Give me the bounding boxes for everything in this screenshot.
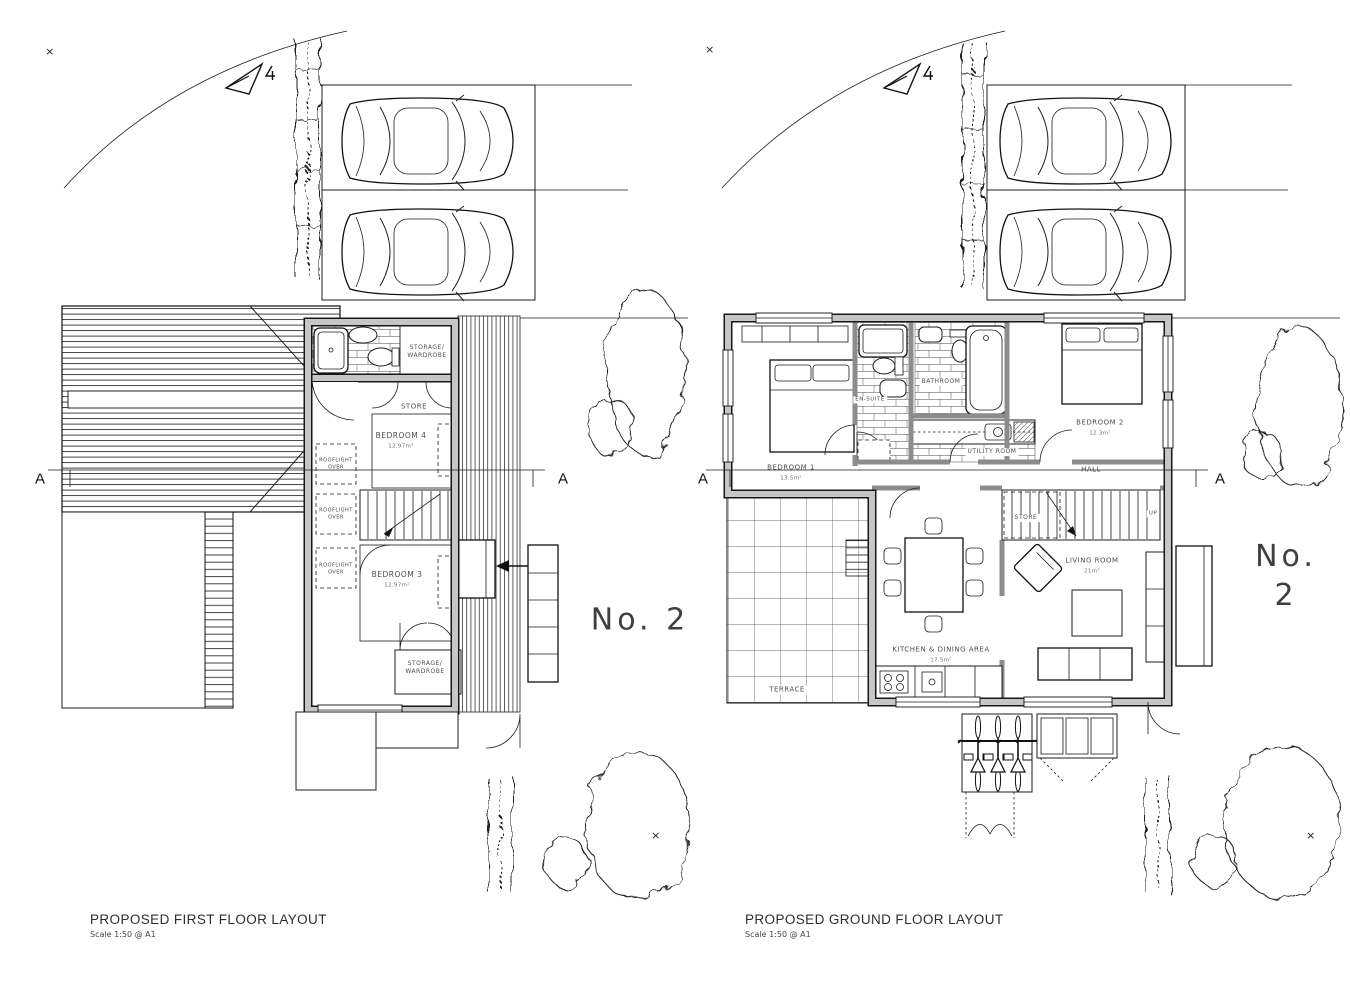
room-label-store: STORE (1013, 514, 1040, 522)
room-label-hall: HALL (1081, 465, 1101, 474)
room-label-storage-wardrobe-bottom: STORAGE/ WARDROBE (405, 660, 444, 676)
survey-mark: × (651, 829, 661, 843)
room-label-terrace: TERRACE (767, 685, 807, 694)
room-label-bedroom3: BEDROOM 3 (372, 570, 423, 580)
room-area-bedroom4: 12.97m² (388, 443, 413, 450)
drawing-scale-note: Scale 1:50 @ A1 (745, 930, 811, 939)
room-area-bedroom1: 13.5m² (780, 475, 802, 482)
hedge-icon (296, 38, 320, 280)
room-label-living: LIVING ROOM (1065, 556, 1118, 565)
room-label-utility: UTILITY ROOM (966, 448, 1019, 456)
section-marker-a: A (558, 469, 568, 489)
stairs-up-label: UP (1147, 510, 1159, 517)
survey-mark: × (1306, 829, 1316, 843)
room-area-kitchen-dining: 17.5m² (930, 657, 952, 664)
room-label-storage-wardrobe-top: STORAGE/ WARDROBE (407, 344, 446, 360)
car-icon (1000, 95, 1171, 190)
hedge-icon (1146, 776, 1170, 894)
drawing-title-first-floor: PROPOSED FIRST FLOOR LAYOUT (90, 912, 327, 927)
room-label-kitchen-dining: KITCHEN & DINING AREA (892, 645, 989, 654)
section-marker-a: A (35, 469, 45, 489)
rooflight-label: ROOFLIGHT OVER (319, 508, 353, 521)
north-arrow-icon (226, 64, 275, 94)
room-label-bedroom2: BEDROOM 2 (1076, 418, 1124, 427)
hedge-icon (488, 776, 512, 894)
room-label-bedroom1: BEDROOM 1 (767, 463, 815, 472)
car-icon (1000, 206, 1171, 301)
rooflight-label: ROOFLIGHT OVER (319, 458, 353, 471)
tree-icon (546, 290, 690, 900)
floor-plan-drawing (0, 0, 1350, 982)
drawing-scale-note: Scale 1:50 @ A1 (90, 930, 156, 939)
room-area-living: 21m² (1084, 568, 1100, 575)
car-icon (342, 206, 513, 301)
room-area-bedroom2: 12.3m² (1089, 430, 1111, 437)
survey-mark: × (705, 43, 715, 57)
drawing-title-ground-floor: PROPOSED GROUND FLOOR LAYOUT (745, 912, 1004, 927)
drawing-sheet: STORAGE/ WARDROBE STORE BEDROOM 4 12.97m… (0, 0, 1350, 982)
room-label-bathroom: BATHROOM (920, 378, 963, 386)
section-marker-a: A (1215, 469, 1225, 489)
first-floor-plan (48, 31, 690, 900)
hedge-icon (962, 40, 984, 290)
house-number: No. 2 (591, 601, 689, 640)
room-label-store: STORE (401, 402, 427, 411)
rooflight-label: ROOFLIGHT OVER (319, 563, 353, 576)
north-arrow-icon (884, 64, 933, 94)
car-icon (342, 95, 513, 190)
room-area-bedroom3: 12.97m² (384, 582, 409, 589)
section-marker-a: A (698, 469, 708, 489)
house-number: No. 2 (1254, 537, 1318, 615)
room-label-en-suite: EN-SUITE (853, 396, 887, 403)
room-label-bedroom4: BEDROOM 4 (376, 431, 427, 441)
survey-mark: × (45, 45, 55, 59)
